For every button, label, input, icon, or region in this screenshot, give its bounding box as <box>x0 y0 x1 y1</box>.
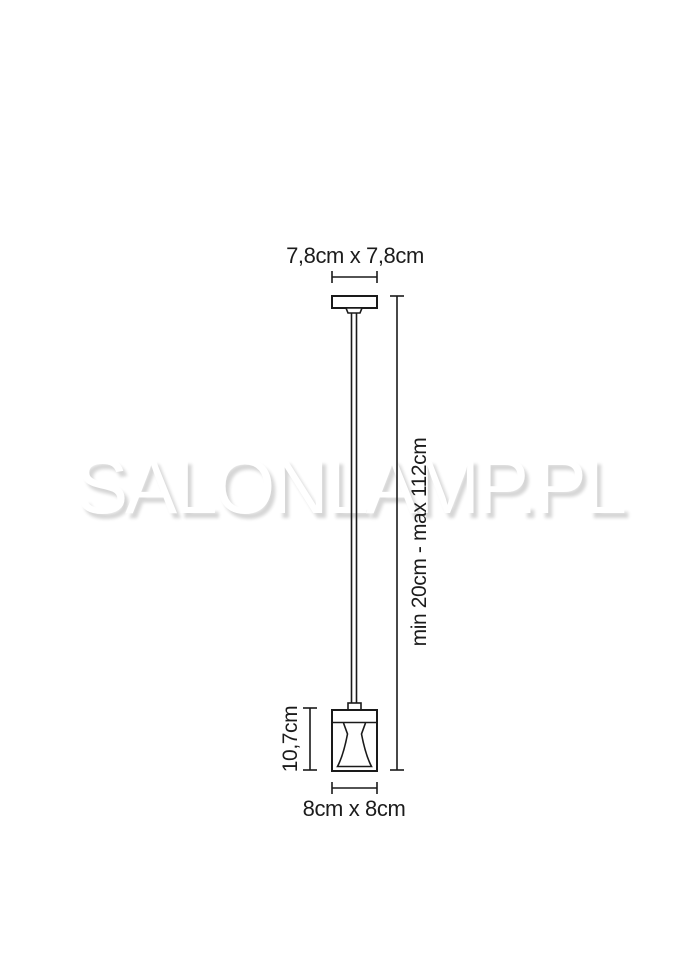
canopy-width-dimension-line <box>332 271 377 283</box>
canopy-size-label: 7,8cm x 7,8cm <box>286 243 424 269</box>
canopy-collar <box>346 308 362 313</box>
pendant-lamp-drawing <box>0 0 700 980</box>
shade-height-label: 10,7cm <box>279 706 303 772</box>
shade-height-dimension-line <box>303 708 317 770</box>
lamp-shade-body <box>332 710 377 771</box>
shade-width-dimension-line <box>332 782 377 794</box>
suspension-rod <box>352 313 357 703</box>
suspension-range-label: min 20cm - max 112cm <box>408 438 432 647</box>
ceiling-canopy <box>332 296 377 308</box>
lamp-dimension-diagram: SALONLAMP.PL <box>0 0 700 980</box>
rod-shade-connector <box>348 703 361 710</box>
suspension-length-dimension-line <box>390 296 404 770</box>
shade-size-label: 8cm x 8cm <box>303 796 406 822</box>
